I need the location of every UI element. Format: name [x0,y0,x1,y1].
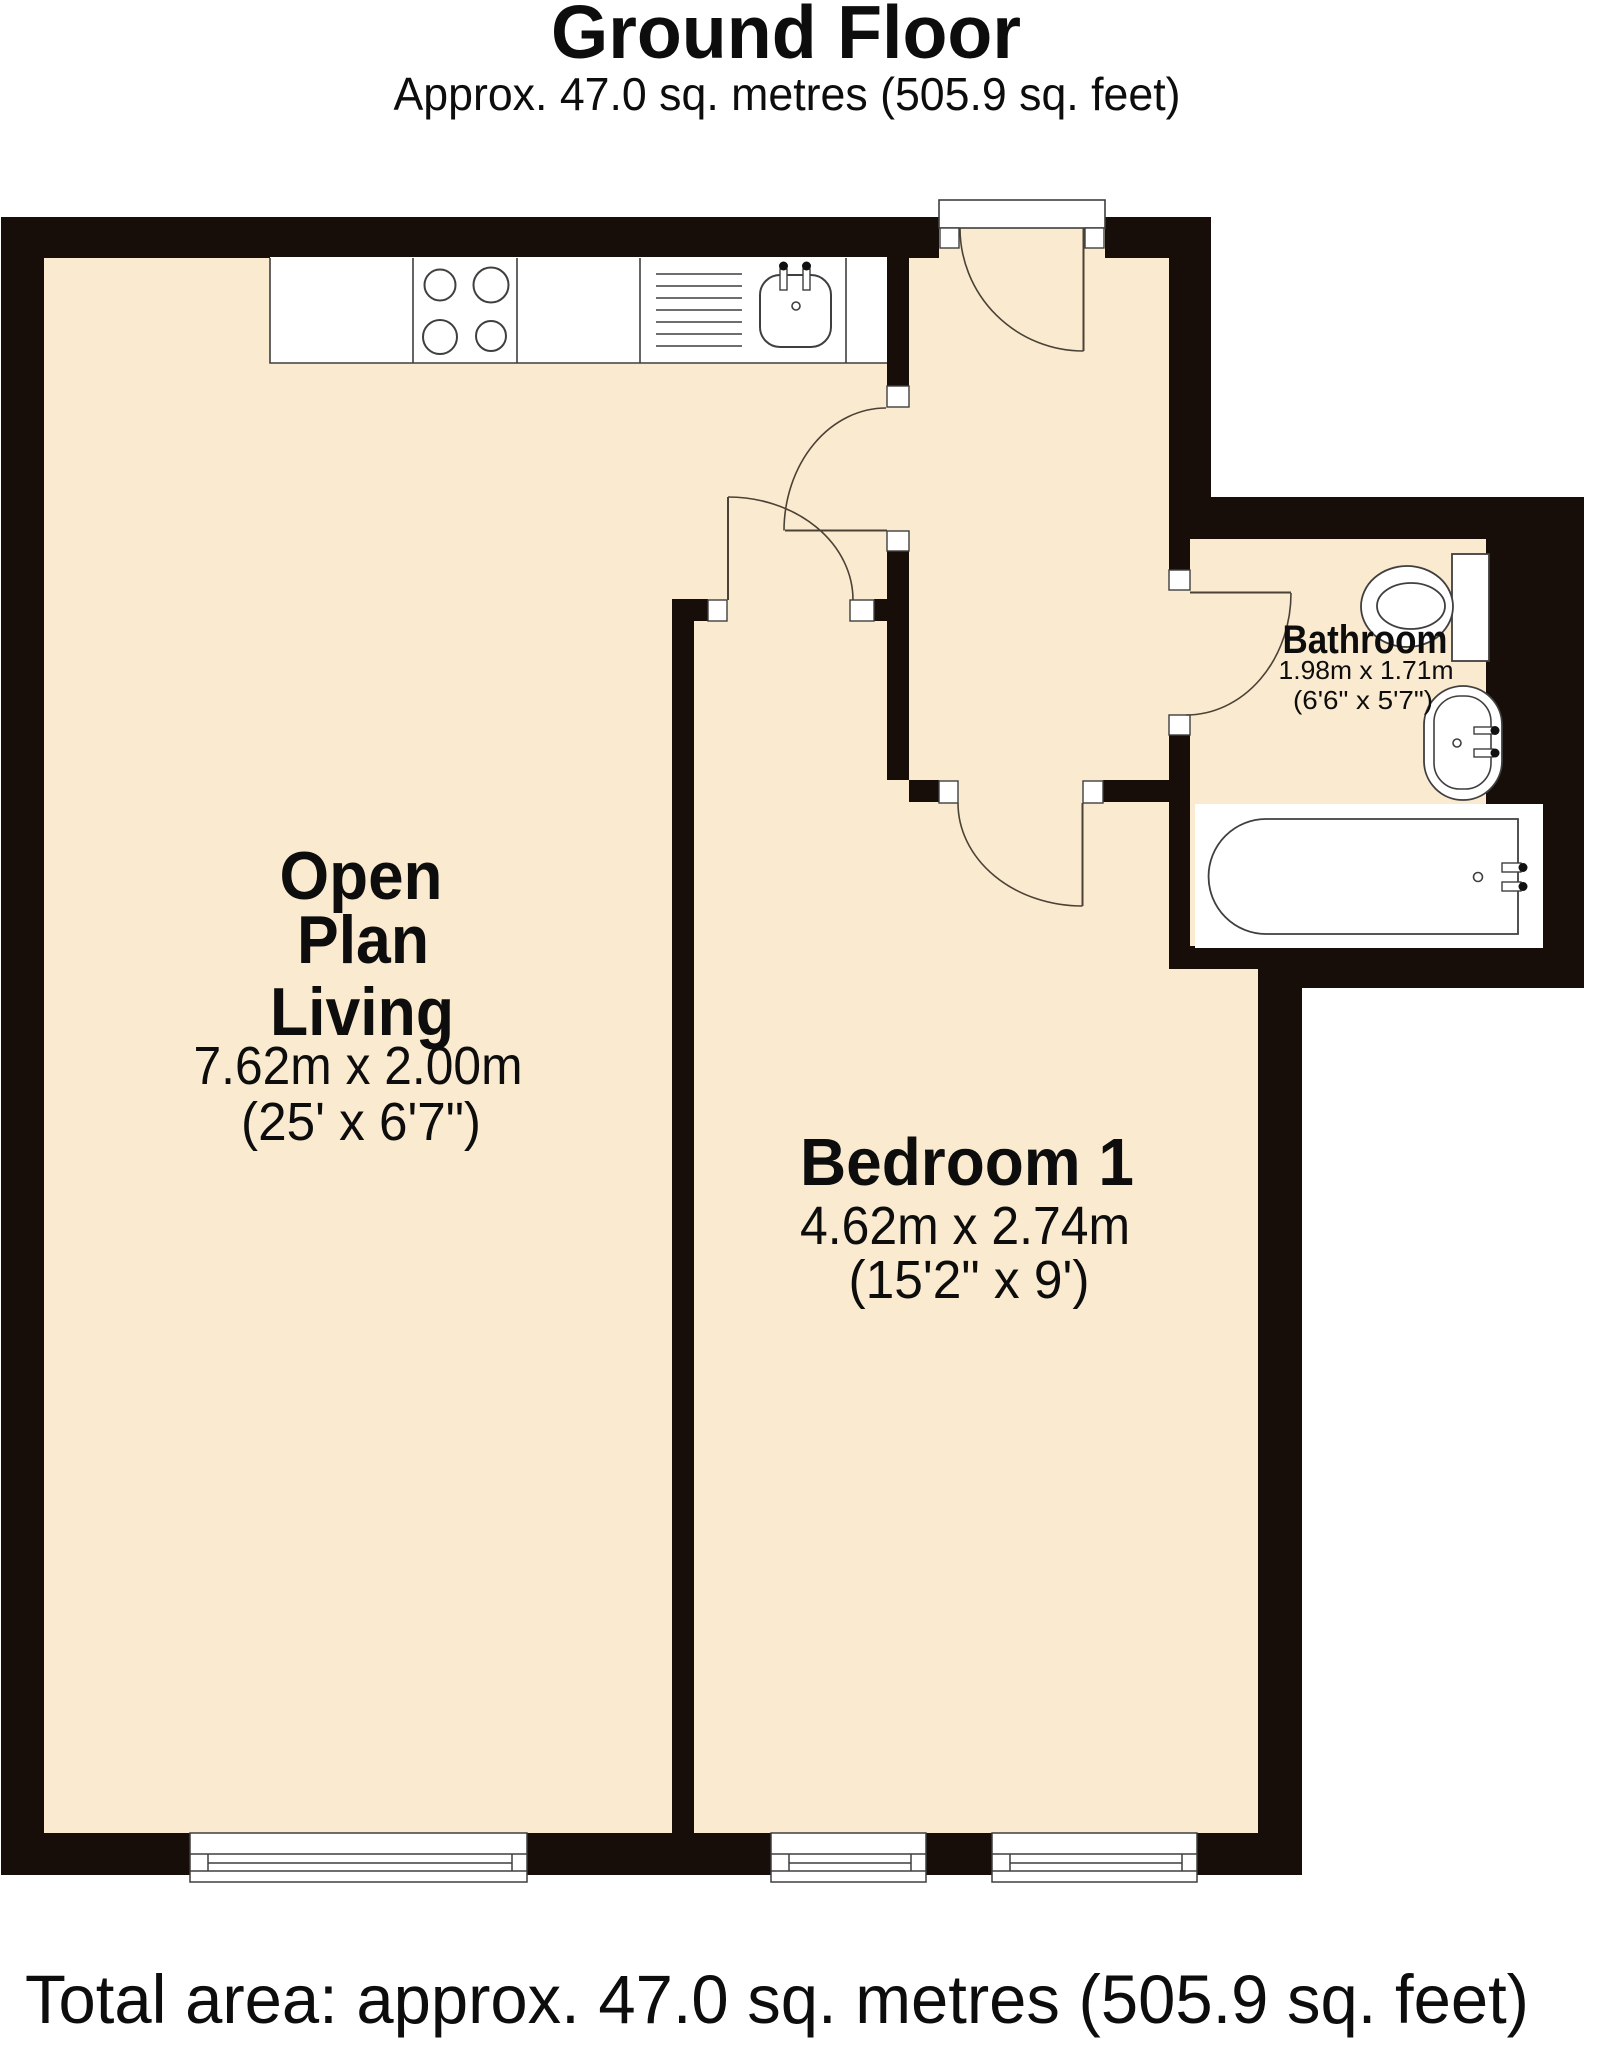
svg-text:(25' x 6'7"): (25' x 6'7") [241,1092,481,1152]
svg-text:1.98m x 1.71m: 1.98m x 1.71m [1279,655,1454,685]
svg-text:Bedroom 1: Bedroom 1 [800,1125,1134,1200]
svg-text:(15'2" x 9'): (15'2" x 9') [849,1250,1090,1310]
svg-text:4.62m x 2.74m: 4.62m x 2.74m [800,1196,1130,1256]
svg-text:Approx. 47.0 sq. metres (505.9: Approx. 47.0 sq. metres (505.9 sq. feet) [394,68,1181,120]
svg-text:7.62m x 2.00m: 7.62m x 2.00m [194,1036,523,1096]
svg-text:(6'6" x 5'7"): (6'6" x 5'7") [1293,685,1433,715]
svg-text:Plan: Plan [297,902,429,978]
svg-text:Ground Floor: Ground Floor [551,0,1021,74]
svg-text:Total area: approx. 47.0 sq. m: Total area: approx. 47.0 sq. metres (505… [25,1961,1529,2038]
